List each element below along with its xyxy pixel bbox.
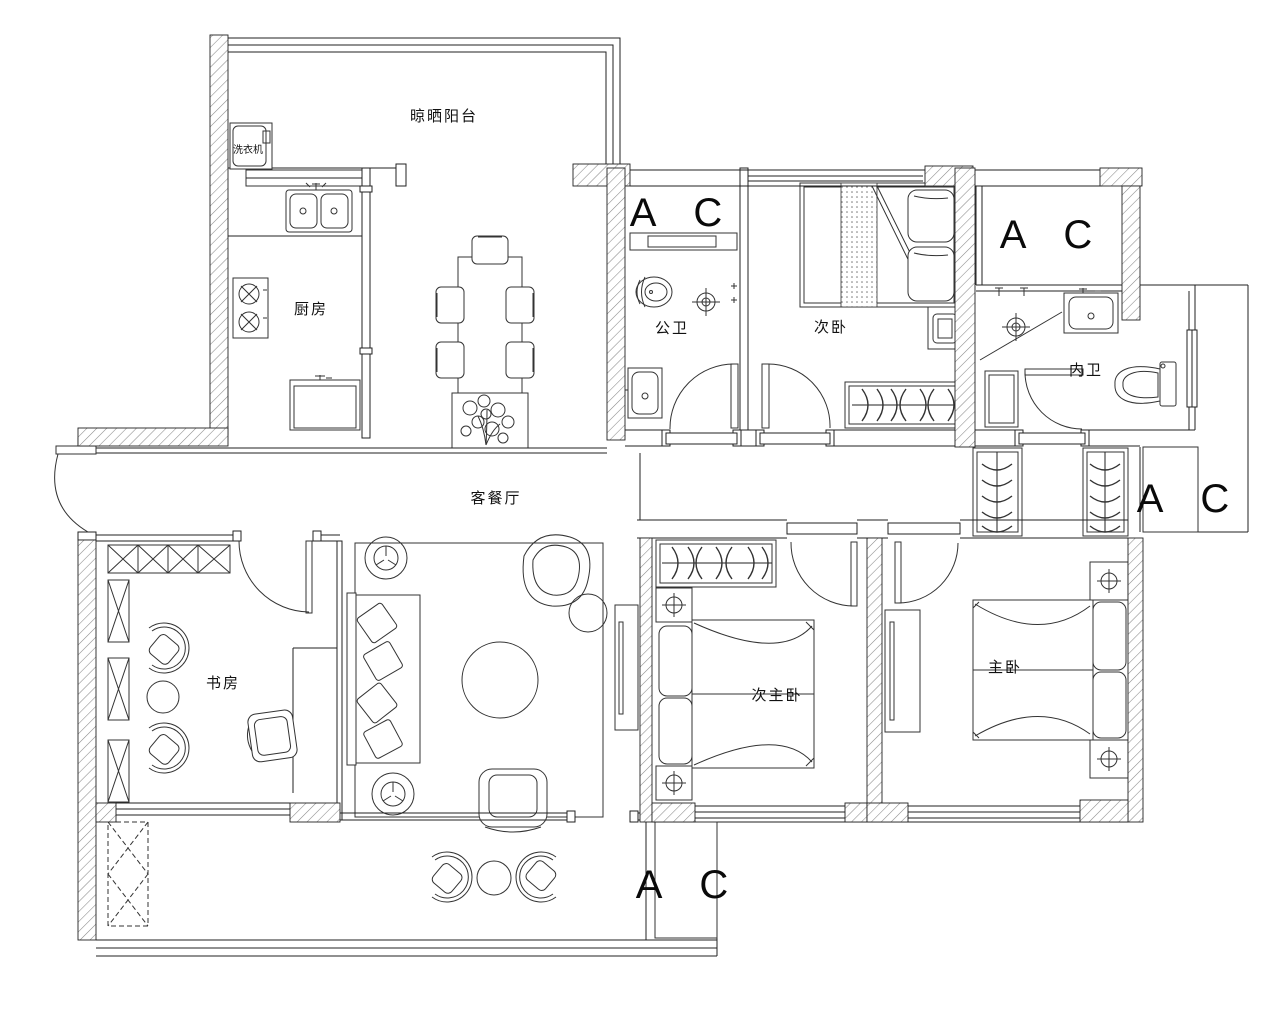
dining-area bbox=[436, 236, 534, 448]
second-master-bedroom-label: 次主卧 bbox=[751, 686, 802, 704]
study-east-wall bbox=[337, 541, 342, 820]
accent-armchair bbox=[479, 769, 547, 832]
bathroom-door-leaf bbox=[731, 364, 738, 428]
hall-bedroom-wall bbox=[625, 430, 1140, 446]
wardrobe bbox=[845, 382, 963, 428]
dresser bbox=[885, 610, 920, 732]
living-room bbox=[347, 535, 638, 832]
bathroom-sink bbox=[622, 368, 662, 418]
dining-chair bbox=[436, 287, 464, 323]
plant bbox=[452, 393, 528, 448]
bathroom-door-swing bbox=[670, 364, 734, 429]
dining-chair bbox=[506, 342, 534, 378]
nightstand bbox=[656, 766, 692, 800]
ac-label-bottom: A C bbox=[636, 863, 742, 907]
study-door-leaf bbox=[306, 541, 312, 613]
door-swing bbox=[791, 542, 854, 606]
ac-label-top-right: A C bbox=[1000, 213, 1106, 257]
door-swing bbox=[898, 543, 958, 603]
second-master-bedroom: 次主卧 bbox=[656, 540, 857, 800]
south-windows bbox=[116, 803, 1128, 822]
pillow bbox=[1093, 602, 1126, 670]
bedroom2: 次卧 bbox=[740, 168, 963, 446]
bedroom2-door-leaf bbox=[762, 364, 769, 428]
side-table bbox=[147, 681, 179, 713]
base-cabinet bbox=[290, 375, 360, 430]
floor-plan-drawing: 洗衣机 晾晒阳台 厨房 bbox=[0, 0, 1269, 1015]
nightstand bbox=[656, 588, 692, 622]
kitchen-east-wall bbox=[362, 168, 370, 438]
dining-chair bbox=[436, 342, 464, 378]
washing-machine-label: 洗衣机 bbox=[233, 143, 263, 156]
pillow bbox=[1093, 672, 1126, 738]
living-dining-label: 客餐厅 bbox=[470, 489, 521, 507]
study-label: 书房 bbox=[206, 674, 240, 692]
armchair-icon bbox=[147, 723, 189, 773]
kitchen-sink bbox=[286, 183, 352, 232]
balcony-chair-icon bbox=[516, 852, 558, 902]
master-bedroom-label: 主卧 bbox=[988, 658, 1022, 676]
sofa bbox=[347, 593, 420, 765]
public-bathroom: 公卫 A C bbox=[622, 191, 741, 446]
balcony-chair-icon bbox=[430, 852, 472, 902]
balcony-table bbox=[477, 861, 511, 895]
floor-plan-canvas: 洗衣机 晾晒阳台 厨房 bbox=[0, 0, 1269, 1015]
floor-drain-icon bbox=[692, 288, 720, 316]
study-top-cabinet bbox=[108, 545, 230, 573]
master-bedroom: 主卧 bbox=[885, 542, 1128, 778]
desk-chair bbox=[244, 709, 298, 763]
kitchen: 厨房 bbox=[228, 168, 372, 438]
tv-cabinet bbox=[615, 605, 638, 730]
study-desk bbox=[293, 648, 337, 793]
balcony-cabinet bbox=[108, 822, 148, 926]
ac-label-top-left: A C bbox=[630, 191, 736, 235]
pillow bbox=[659, 626, 692, 696]
hallway: 客餐厅 bbox=[96, 448, 607, 507]
shower-drain-icon bbox=[1002, 313, 1030, 341]
pillow bbox=[659, 698, 692, 764]
ac-platform-top-right: A C bbox=[976, 186, 1122, 291]
closet-right bbox=[1083, 448, 1128, 536]
entry-door bbox=[55, 438, 96, 540]
drying-balcony-label: 晾晒阳台 bbox=[410, 107, 478, 125]
shower-tray bbox=[985, 371, 1018, 427]
dining-chair bbox=[506, 287, 534, 323]
ensuite-bathroom-label: 内卫 bbox=[1069, 361, 1103, 379]
study-side-cabinets bbox=[108, 580, 129, 802]
wardrobe bbox=[656, 540, 776, 587]
coffee-table bbox=[462, 642, 538, 718]
study: 书房 bbox=[96, 531, 342, 820]
balcony-door-jamb bbox=[396, 164, 406, 186]
study-door-swing bbox=[239, 541, 309, 612]
bedroom2-label: 次卧 bbox=[814, 318, 848, 336]
door-leaf bbox=[895, 542, 901, 603]
toilet-icon bbox=[636, 277, 672, 307]
ensuite-bathroom: 内卫 bbox=[980, 285, 1197, 446]
round-stool bbox=[372, 773, 414, 815]
ensuite-toilet-icon bbox=[1115, 362, 1176, 406]
bed-double bbox=[800, 183, 958, 307]
bedroom2-door-swing bbox=[768, 364, 830, 428]
ensuite-door-swing bbox=[1025, 372, 1082, 429]
armchair-icon bbox=[147, 623, 189, 673]
door-leaf bbox=[851, 542, 857, 606]
ensuite-sink bbox=[1064, 288, 1118, 333]
lower-balcony: A C bbox=[96, 822, 742, 956]
closet-left bbox=[973, 448, 1022, 536]
kitchen-label: 厨房 bbox=[294, 300, 328, 318]
shower-valves bbox=[995, 288, 1028, 296]
dining-chair bbox=[472, 236, 508, 264]
bedroom2-west-wall bbox=[740, 168, 748, 430]
nightstand bbox=[1090, 740, 1128, 778]
bedroom-north-wall bbox=[637, 453, 1128, 538]
entry-door-swing bbox=[55, 454, 88, 532]
ottoman bbox=[569, 594, 607, 632]
ac-label-right: A C bbox=[1137, 477, 1243, 521]
public-bathroom-label: 公卫 bbox=[655, 319, 689, 337]
lounge-chair bbox=[523, 535, 607, 632]
entry-door-leaf bbox=[56, 446, 96, 454]
drying-balcony: 洗衣机 晾晒阳台 bbox=[228, 38, 620, 186]
nightstand bbox=[1090, 562, 1128, 600]
stove bbox=[233, 278, 268, 338]
